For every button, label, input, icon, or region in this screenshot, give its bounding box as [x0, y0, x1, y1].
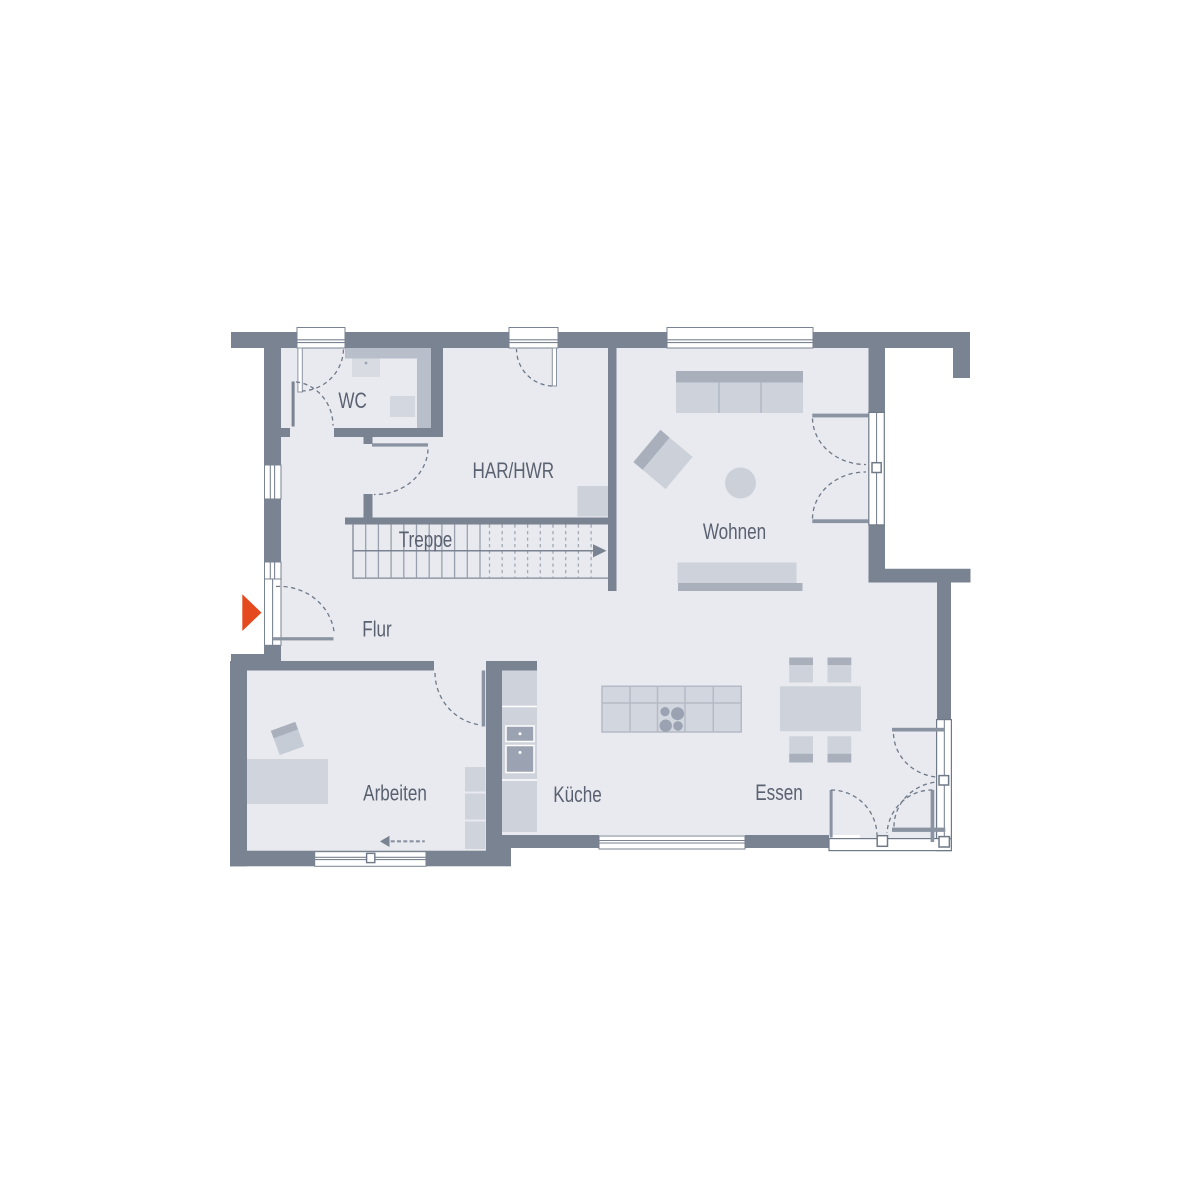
svg-text:Arbeiten: Arbeiten [363, 781, 427, 806]
svg-text:Wohnen: Wohnen [703, 520, 766, 545]
svg-text:WC: WC [338, 389, 366, 414]
svg-text:Treppe: Treppe [399, 528, 453, 553]
svg-text:Küche: Küche [553, 783, 601, 808]
svg-text:HAR/HWR: HAR/HWR [472, 459, 554, 484]
svg-text:Flur: Flur [362, 617, 392, 642]
svg-text:Essen: Essen [755, 781, 802, 806]
